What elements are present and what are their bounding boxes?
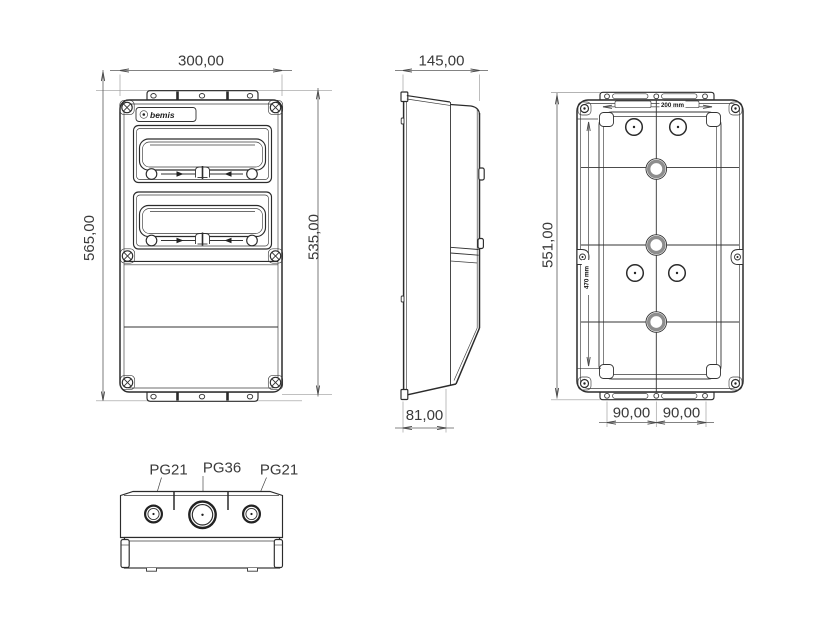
dim-front-overall-height: 565,00 [81,70,105,401]
dim-side-base-depth-label: 81,00 [406,407,444,424]
gland-label-pg36: PG36 [203,459,241,476]
drawing-canvas: bemis [0,0,825,625]
dim-side-depth: 145,00 [395,53,488,73]
front-view: bemis [120,91,283,402]
bottom-view: PG21 PG36 PG21 [121,459,299,571]
front-window-lower [134,192,272,249]
dim-front-width-label: 300,00 [178,53,224,70]
side-view [401,92,484,400]
brand-logo: bemis [136,108,196,122]
front-bottom-mounting-strip [147,392,258,401]
dim-mount-height-label: 470 mm [584,265,591,289]
side-latch-knob [479,168,484,180]
dim-mount-width-label: 200 mm [661,102,685,109]
side-latch-knob [478,239,483,249]
dim-front-width: 300,00 [110,53,292,73]
dim-front-overall-height-label: 565,00 [81,215,98,261]
front-top-mounting-strip [147,91,258,100]
technical-drawing-sheet: bemis [0,0,825,625]
rear-view: 200 mm 470 mm [577,92,743,399]
gland-label-pg21-right: PG21 [260,461,298,478]
dim-rear-height-label: 551,00 [540,222,557,268]
dim-side-base-depth: 81,00 [395,407,454,430]
gland-label-pg21-left: PG21 [149,461,187,478]
dim-side-depth-label: 145,00 [419,53,465,70]
brand-logo-text: bemis [150,110,175,120]
dim-rear-bottom-right-label: 90,00 [663,405,701,422]
rear-top-mounting-strip [600,92,714,100]
front-window-upper [134,126,272,183]
rear-bottom-mounting-strip [600,392,714,400]
dim-rear-height: 551,00 [540,93,559,399]
dim-rear-bottom-left-label: 90,00 [613,405,651,422]
dim-front-body-height: 535,00 [306,88,323,397]
dim-front-body-height-label: 535,00 [306,214,323,260]
